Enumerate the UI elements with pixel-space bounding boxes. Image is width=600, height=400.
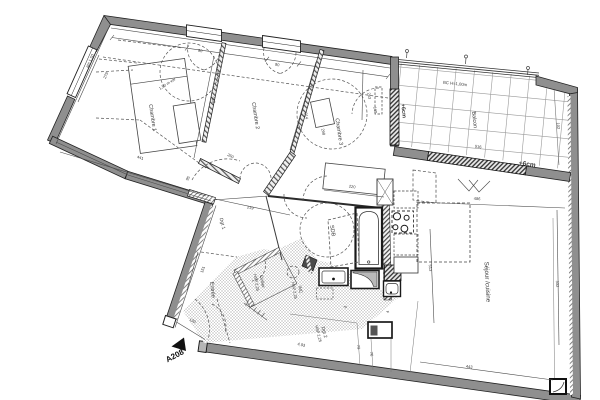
svg-text:102: 102 xyxy=(556,122,562,130)
svg-text:513: 513 xyxy=(428,264,434,272)
svg-text:332: 332 xyxy=(555,281,560,289)
svg-text:486: 486 xyxy=(474,196,482,202)
